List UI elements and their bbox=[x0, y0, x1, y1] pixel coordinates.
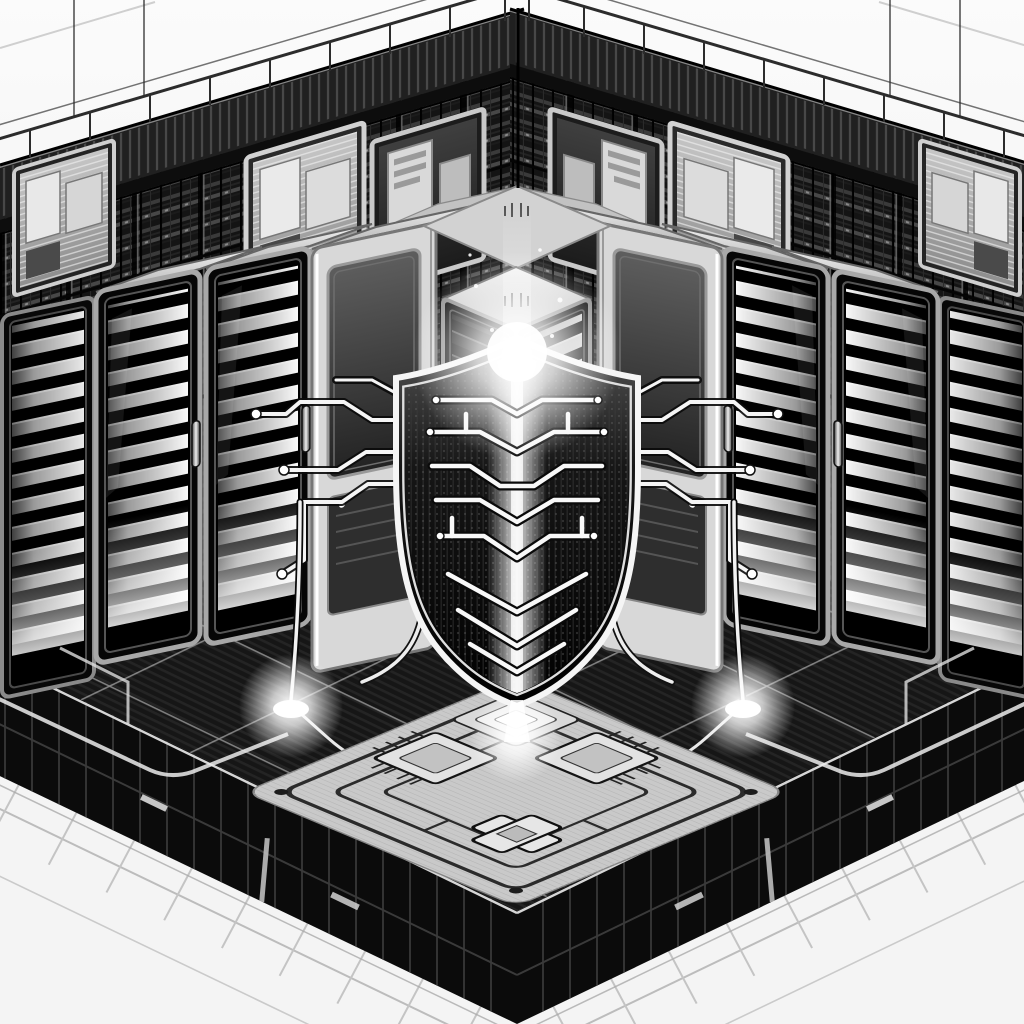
server-rack bbox=[2, 297, 94, 698]
server-room-illustration: Monochrome isometric illustration of a d… bbox=[0, 0, 1024, 1024]
door-handle bbox=[192, 420, 200, 468]
isometric-server-room-scene: Monochrome isometric illustration of a d… bbox=[0, 0, 1024, 1024]
wall-monitor bbox=[14, 140, 114, 296]
door-handle bbox=[302, 405, 310, 453]
